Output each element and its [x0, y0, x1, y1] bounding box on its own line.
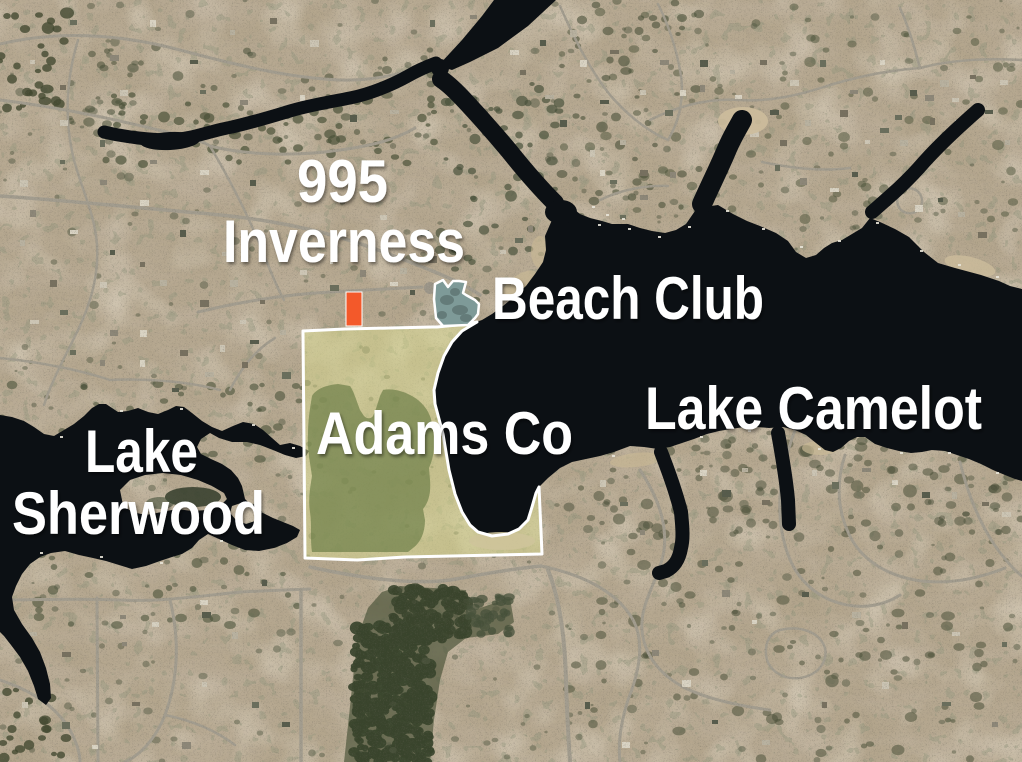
svg-text:Lake Camelot: Lake Camelot — [645, 375, 982, 442]
svg-text:Sherwood: Sherwood — [12, 480, 265, 547]
svg-text:995: 995 — [297, 148, 388, 215]
svg-text:Lake: Lake — [85, 418, 198, 485]
svg-text:Inverness: Inverness — [223, 208, 465, 275]
svg-text:Adams Co: Adams Co — [316, 400, 573, 467]
svg-text:Beach Club: Beach Club — [492, 265, 764, 332]
